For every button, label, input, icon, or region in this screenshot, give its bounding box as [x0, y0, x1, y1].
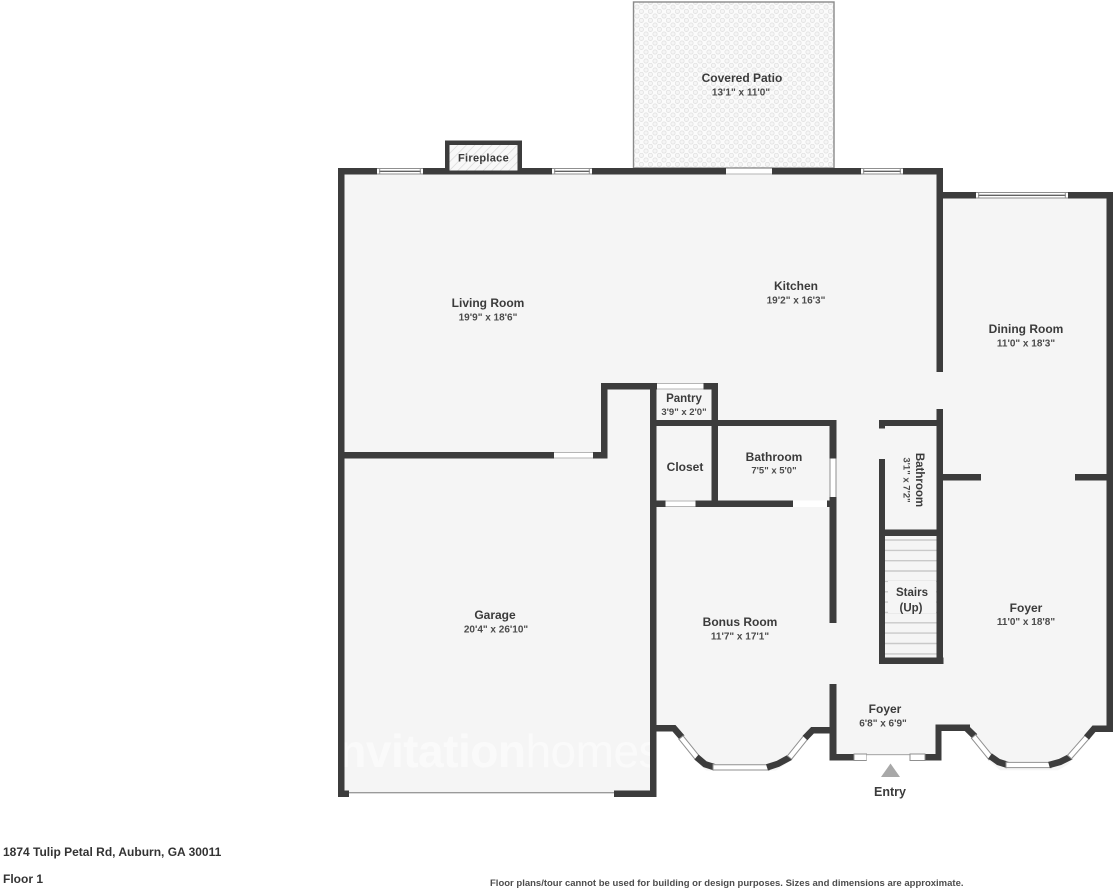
svg-text:Bonus Room: Bonus Room: [703, 615, 778, 629]
svg-text:(Up): (Up): [900, 603, 923, 615]
svg-text:Fireplace: Fireplace: [458, 153, 509, 165]
svg-text:Living Room: Living Room: [452, 296, 525, 310]
svg-text:3'9" x 2'0": 3'9" x 2'0": [661, 407, 706, 418]
svg-text:Closet: Closet: [667, 460, 704, 474]
svg-text:Floor plans/tour cannot be use: Floor plans/tour cannot be used for buil…: [490, 878, 964, 889]
svg-text:Bathroom: Bathroom: [746, 450, 803, 464]
svg-text:Stairs: Stairs: [896, 587, 928, 599]
svg-text:Covered Patio: Covered Patio: [702, 71, 783, 85]
svg-text:20'4" x 26'10": 20'4" x 26'10": [464, 625, 529, 636]
svg-text:19'9" x 18'6": 19'9" x 18'6": [459, 313, 518, 324]
svg-text:Bathroom: Bathroom: [913, 453, 925, 507]
svg-text:7'5" x 5'0": 7'5" x 5'0": [751, 466, 796, 477]
svg-text:11'0" x 18'8": 11'0" x 18'8": [997, 617, 1055, 628]
svg-text:6'8" x 6'9": 6'8" x 6'9": [859, 719, 907, 730]
svg-text:13'1" x 11'0": 13'1" x 11'0": [712, 88, 770, 99]
svg-text:19'2" x 16'3": 19'2" x 16'3": [767, 296, 826, 307]
svg-text:11'7" x 17'1": 11'7" x 17'1": [711, 632, 769, 643]
svg-text:Kitchen: Kitchen: [774, 279, 818, 293]
svg-text:invitationhomes: invitationhomes: [326, 725, 661, 777]
svg-text:1874 Tulip Petal Rd, Auburn, G: 1874 Tulip Petal Rd, Auburn, GA 30011: [3, 845, 222, 859]
svg-text:Floor 1: Floor 1: [3, 872, 43, 886]
svg-text:Foyer: Foyer: [869, 702, 902, 716]
svg-text:Foyer: Foyer: [1010, 601, 1043, 615]
svg-text:11'0" x 18'3": 11'0" x 18'3": [997, 339, 1055, 350]
svg-text:Entry: Entry: [874, 785, 906, 799]
svg-text:3'1" x 7'2": 3'1" x 7'2": [901, 457, 912, 502]
svg-text:Garage: Garage: [474, 608, 516, 622]
svg-text:Dining Room: Dining Room: [989, 322, 1064, 336]
svg-text:Pantry: Pantry: [666, 393, 702, 405]
